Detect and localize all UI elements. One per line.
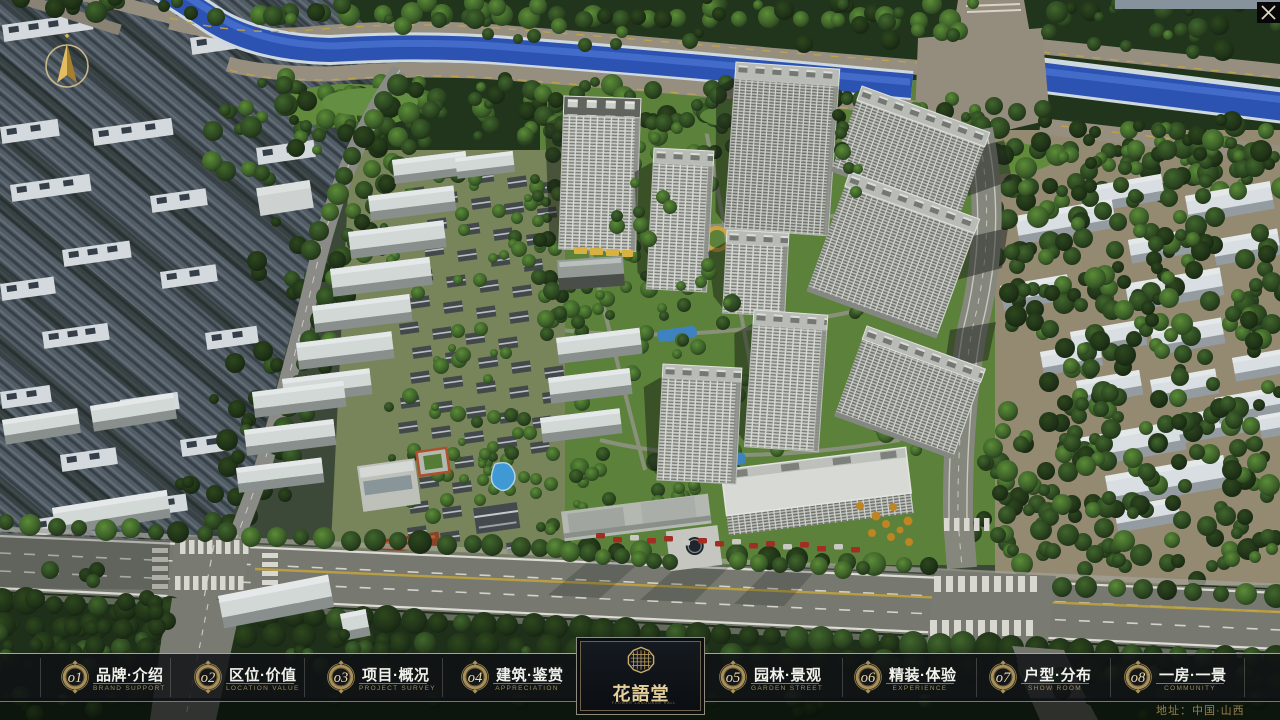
svg-text:o6: o6 (861, 670, 876, 686)
svg-text:o7: o7 (996, 670, 1011, 686)
svg-text:o2: o2 (201, 670, 216, 686)
svg-text:o1: o1 (68, 670, 83, 686)
svg-text:o5: o5 (726, 670, 741, 686)
svg-text:o4: o4 (468, 670, 483, 686)
svg-text:o3: o3 (334, 670, 349, 686)
svg-text:o8: o8 (1131, 670, 1146, 686)
